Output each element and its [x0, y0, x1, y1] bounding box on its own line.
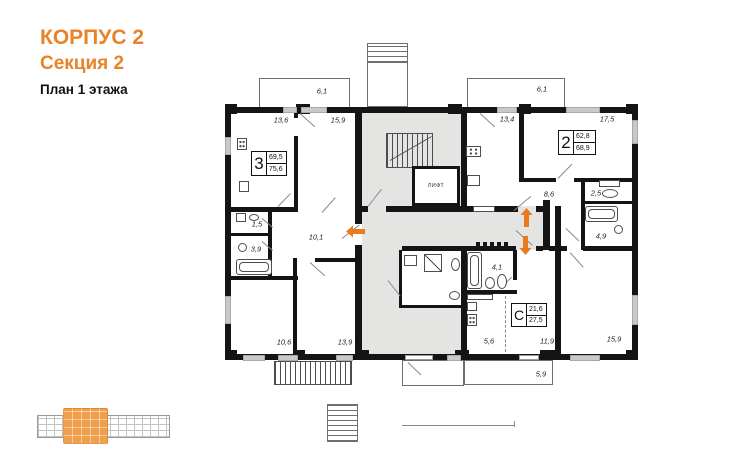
- shaft-block: [497, 242, 501, 246]
- wall-pier: [626, 350, 638, 360]
- kitchen-counter: [473, 206, 495, 212]
- balcony-right: [467, 78, 565, 108]
- room-area-label: 5,6: [484, 337, 494, 346]
- interior-wall: [519, 178, 556, 182]
- room-area-label: 10,1: [309, 233, 324, 242]
- walkway-line: [402, 425, 515, 426]
- interior-wall: [519, 107, 524, 182]
- room-area-label: 10,6: [277, 338, 292, 347]
- apartment-living-area: 62,8: [574, 131, 595, 143]
- bathtub-icon: [467, 252, 482, 289]
- window: [566, 107, 600, 113]
- interior-wall: [555, 206, 561, 250]
- floor-title: План 1 этажа: [40, 82, 128, 97]
- kitchen-counter: [467, 294, 493, 300]
- corridor-bottom-wall-a: [402, 246, 516, 251]
- sink-icon: [239, 181, 249, 192]
- room-area-label: 13,9: [338, 338, 353, 347]
- room-area-label: 5,9: [536, 370, 546, 379]
- room-area-label: 15,9: [331, 116, 346, 125]
- shaft-block: [490, 242, 494, 246]
- door-opening: [405, 355, 433, 360]
- apartment-card-2: 2 62,8 68,9: [558, 130, 596, 155]
- washbasin-icon: [485, 277, 495, 289]
- window: [497, 107, 517, 113]
- door-swing: [322, 197, 336, 213]
- toilet-icon: [451, 258, 460, 271]
- window: [632, 295, 638, 325]
- room-area-label: 15,9: [607, 335, 622, 344]
- interior-wall: [293, 258, 297, 360]
- stair-core-wall-left-lower: [355, 245, 362, 360]
- section-title: Секция 2: [40, 53, 124, 75]
- building-locator-map: [37, 408, 170, 444]
- door-swing: [570, 252, 584, 268]
- toilet-icon: [602, 189, 618, 198]
- toilet-icon: [449, 291, 460, 300]
- entrance-arrow-apt2: [520, 208, 533, 227]
- window: [570, 355, 600, 361]
- apartment-total-area: 27,5: [527, 316, 546, 327]
- washbasin-icon: [614, 225, 623, 234]
- apartment-type: С: [512, 304, 527, 326]
- elevator-label: ЛИФТ: [428, 183, 444, 189]
- apartment-living-area: 21,6: [527, 304, 546, 316]
- stairwell-bottom-wall-b: [386, 206, 461, 212]
- wc-room-wall-left: [399, 250, 402, 308]
- door-swing: [566, 228, 580, 241]
- shaft-block: [483, 242, 487, 246]
- interior-wall: [294, 136, 298, 212]
- stove-icon: [237, 138, 247, 150]
- door-opening: [519, 355, 539, 360]
- studio-kitchen-zone-line: [505, 296, 506, 352]
- toilet-icon: [497, 274, 507, 289]
- locator-highlighted-section: [63, 408, 108, 444]
- canopy-stair-treads: [367, 43, 408, 63]
- wall-pier: [448, 104, 462, 114]
- apartment-type: 2: [559, 131, 574, 154]
- washbasin-icon: [404, 255, 417, 266]
- apartment-type: 3: [252, 152, 267, 175]
- wall-pier: [225, 350, 237, 360]
- window: [632, 120, 638, 144]
- stove-icon: [466, 146, 481, 157]
- washbasin-icon: [238, 243, 247, 252]
- shelf-icon: [599, 180, 620, 187]
- stairwell-bottom-wall-a: [362, 206, 368, 212]
- room-area-label: 1,5: [252, 220, 262, 229]
- interior-wall: [231, 233, 272, 236]
- door-swing: [278, 193, 291, 207]
- window: [225, 296, 231, 324]
- corridor-lower-area: [402, 308, 462, 355]
- wall-pier: [540, 350, 556, 360]
- room-area-label: 17,5: [600, 115, 615, 124]
- corridor-top-wall-b: [536, 206, 543, 212]
- door-swing: [300, 113, 316, 127]
- sink-icon: [467, 175, 480, 186]
- window: [243, 355, 265, 361]
- corridor-right-wall: [543, 200, 550, 250]
- wall-pier: [225, 104, 237, 114]
- room-area-label: 8,6: [544, 190, 554, 199]
- apartment-living-area: 69,5: [267, 152, 286, 164]
- room-area-label: 4,9: [596, 232, 606, 241]
- window: [225, 137, 231, 155]
- apartment-card-studio: С 21,6 27,5: [511, 303, 547, 327]
- wc-room-wall-bottom: [399, 305, 462, 308]
- window: [301, 107, 327, 113]
- room-area-label: 4,1: [492, 263, 502, 272]
- studio-bath-wall-right: [513, 250, 517, 280]
- interior-wall: [583, 246, 638, 251]
- room-area-label: 6,1: [537, 85, 547, 94]
- washer-icon: [236, 213, 246, 222]
- interior-wall: [231, 207, 294, 212]
- corridor-bottom-wall-b: [536, 246, 543, 251]
- room-area-label: 13,6: [274, 116, 289, 125]
- interior-wall: [555, 250, 561, 360]
- stair-core-wall-left-upper: [355, 107, 362, 224]
- interior-wall: [581, 201, 632, 204]
- stair-core-wall-right: [461, 107, 467, 212]
- apartment-card-3: 3 69,5 75,6: [251, 151, 287, 176]
- exterior-stair-lower: [327, 404, 358, 442]
- corridor-leg-area: [362, 250, 402, 355]
- window: [278, 355, 298, 361]
- room-area-label: 3,9: [251, 245, 261, 254]
- elevator: ЛИФТ: [412, 166, 460, 206]
- entry-porch: [402, 360, 464, 386]
- apartment-total-area: 68,9: [574, 143, 595, 154]
- exterior-stair: [274, 361, 352, 385]
- room-area-label: 6,1: [317, 87, 327, 96]
- door-swing: [480, 113, 496, 127]
- bathtub-icon: [236, 259, 272, 275]
- bathtub-icon: [585, 206, 618, 222]
- room-area-label: 2,5: [591, 189, 601, 198]
- window: [283, 107, 297, 113]
- shaft-block: [504, 242, 508, 246]
- door-swing: [310, 262, 326, 276]
- interior-wall: [231, 276, 298, 280]
- interior-wall: [315, 258, 362, 262]
- window: [336, 355, 353, 361]
- apartment-total-area: 75,6: [267, 164, 286, 175]
- shaft-block: [476, 242, 480, 246]
- stove-icon: [467, 314, 477, 326]
- window: [447, 355, 461, 361]
- room-area-label: 11,9: [540, 337, 554, 346]
- entrance-arrow-studio: [519, 236, 532, 255]
- door-swing: [558, 164, 573, 179]
- shower-icon: [424, 254, 442, 272]
- building-title: КОРПУС 2: [40, 26, 144, 50]
- corridor-area: [362, 206, 543, 250]
- room-area-label: 13,4: [500, 115, 515, 124]
- floor-plan-page: КОРПУС 2 Секция 2 План 1 этажа: [0, 0, 740, 472]
- sink-icon: [467, 302, 477, 311]
- walkway-tick: [514, 421, 515, 427]
- wall-pier: [626, 104, 638, 114]
- entrance-arrow-apt3: [346, 225, 365, 238]
